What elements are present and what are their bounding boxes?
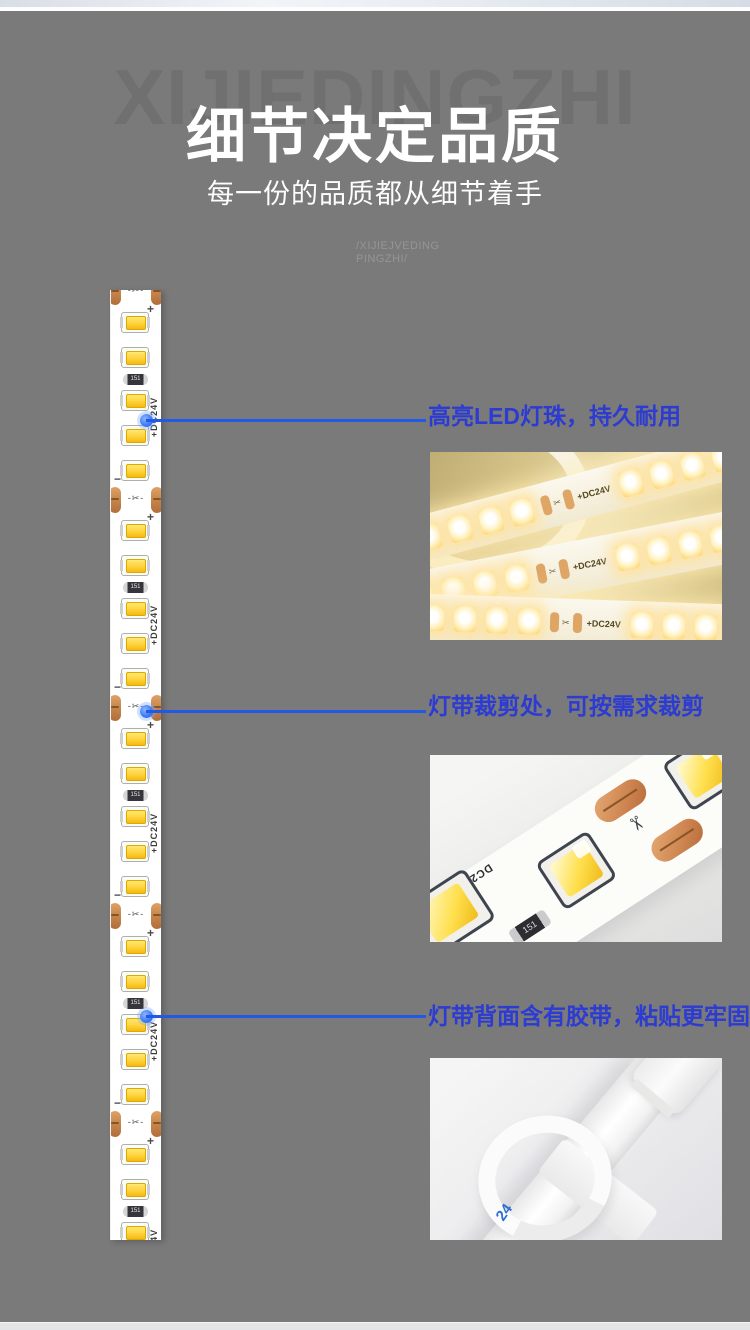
- product-detail-section: XIJIEDINGZHI 细节决定品质 每一份的品质都从细节着手 /XIJIEJ…: [0, 0, 750, 1330]
- led-die: [126, 767, 146, 781]
- led-chip: [121, 425, 149, 446]
- led-die: [126, 880, 146, 894]
- led-die: [126, 524, 146, 538]
- led-chip: [121, 598, 149, 619]
- led-die: [126, 351, 146, 365]
- led-chip: [121, 633, 149, 654]
- led-die: [126, 810, 146, 824]
- led-chip: [121, 347, 149, 368]
- glowing-led: [709, 452, 722, 473]
- led-die: [126, 429, 146, 443]
- glowing-led: [617, 467, 645, 498]
- glowing-led: [477, 505, 505, 536]
- photo-lit-strips: ✂+DC24V✂+DC24V✂+DC24V: [430, 452, 722, 640]
- led-chip: [121, 312, 149, 333]
- led-die: [126, 1148, 146, 1162]
- scissors-icon: -✂-: [111, 1117, 161, 1128]
- glowing-led: [662, 613, 685, 640]
- glowing-led: [677, 530, 704, 560]
- glowing-led: [430, 605, 445, 632]
- led-chip: [121, 520, 149, 541]
- resistor-151: 151: [123, 998, 148, 1009]
- led-chip: [121, 555, 149, 576]
- led-die: [126, 845, 146, 859]
- resistor-151: 151: [123, 582, 148, 593]
- section-subtitle: 每一份的品质都从细节着手: [0, 172, 750, 211]
- slogan-line-1: /XIJIEJVEDING: [356, 240, 440, 253]
- section-title: 细节决定品质: [0, 88, 750, 175]
- led-chip: [121, 1179, 149, 1200]
- led-chip: [121, 1084, 149, 1105]
- glowing-led: [694, 614, 717, 640]
- led-die: [126, 1183, 146, 1197]
- led-chip: [121, 763, 149, 784]
- led-chip: [121, 1049, 149, 1070]
- dc24v-label: +DC24V: [149, 1222, 159, 1240]
- minus-mark: −: [114, 888, 121, 902]
- slogan-text: /XIJIEJVEDING PINGZHI/: [356, 240, 440, 266]
- dc24v-label: +DC24V: [572, 556, 608, 572]
- scissors-icon: ✂: [548, 565, 558, 577]
- scissors-icon: ✂: [562, 617, 570, 628]
- resistor-151: 151: [508, 909, 552, 942]
- callout-line-1: [146, 419, 426, 422]
- glowing-led: [486, 607, 509, 634]
- resistor-151: 151: [123, 790, 148, 801]
- glowing-led: [630, 612, 653, 639]
- scissors-icon: -✂-: [111, 909, 161, 920]
- scissors-icon: ✂: [622, 811, 650, 837]
- strip-segment: -✂-−+151+DC24V: [111, 916, 161, 1124]
- glowing-led: [679, 452, 707, 482]
- led-chip: [121, 668, 149, 689]
- glowing-led: [518, 608, 541, 635]
- copper-pad: [550, 612, 560, 632]
- led-strip: -✂-−+151+DC24V-✂-−+151+DC24V-✂-−+151+DC2…: [110, 290, 161, 1240]
- cut-point: ✂+DC24V: [550, 612, 621, 634]
- led-die: [126, 1053, 146, 1067]
- glowing-led: [446, 513, 474, 544]
- callout-line-3: [146, 1015, 426, 1018]
- led-chip: [121, 876, 149, 897]
- led-die: [126, 602, 146, 616]
- glowing-led: [614, 542, 641, 572]
- copper-pad: [646, 814, 708, 867]
- led-die: [126, 732, 146, 746]
- dc24v-label: +DC24V: [149, 598, 159, 652]
- led-die: [126, 940, 146, 954]
- scissors-icon: ✂: [552, 496, 562, 509]
- slogan-line-2: PINGZHI/: [356, 253, 440, 266]
- led-chip: [121, 460, 149, 481]
- callout-line-2: [146, 710, 426, 713]
- dc24v-label: +DC24V: [586, 618, 621, 629]
- led-die: [126, 1226, 146, 1240]
- minus-mark: −: [114, 472, 121, 486]
- minus-mark: −: [114, 1096, 121, 1110]
- led-die: [126, 464, 146, 478]
- copper-pad: [572, 613, 582, 633]
- bottom-edge-bar: [0, 1322, 750, 1330]
- top-edge-highlight: [0, 7, 750, 11]
- led-die: [126, 316, 146, 330]
- led-chip: [535, 830, 617, 911]
- dc24v-label: +DC24V: [576, 483, 612, 502]
- callout-title-1: 高亮LED灯珠，持久耐用: [428, 397, 681, 431]
- copper-pad: [557, 559, 570, 580]
- strip-segment: -✂-−+151+DC24V: [111, 1124, 161, 1240]
- photo-adhesive-back: 24: [430, 1058, 722, 1240]
- callout-title-2: 灯带裁剪处，可按需求裁剪: [428, 687, 704, 721]
- led-die: [126, 975, 146, 989]
- strip-segment: -✂-−+151+DC24V: [111, 500, 161, 708]
- led-chip: [121, 728, 149, 749]
- glowing-led: [508, 497, 536, 528]
- copper-pad: [561, 489, 575, 511]
- resistor-151: 151: [123, 374, 148, 385]
- led-die: [126, 559, 146, 573]
- led-die: [126, 394, 146, 408]
- cut-point: ✂+DC24V: [539, 479, 613, 517]
- glowing-led: [648, 459, 676, 490]
- led-chip: [121, 936, 149, 957]
- led-die: [126, 672, 146, 686]
- led-die: [126, 1088, 146, 1102]
- callout-title-3: 灯带背面含有胶带，粘贴更牢固: [428, 997, 750, 1031]
- strip-segment: -✂-−+151+DC24V: [111, 708, 161, 916]
- dc24v-label: +DC24V: [149, 806, 159, 860]
- top-edge-bar: [0, 0, 750, 7]
- led-chip: [662, 755, 722, 812]
- lit-strip-bar: ✂+DC24V: [430, 593, 722, 640]
- scissors-icon: -✂-: [111, 493, 161, 504]
- photo-cut-point: DC24V+ 151 ✂: [430, 755, 722, 942]
- led-chip: [121, 1222, 149, 1240]
- resistor-151: 151: [123, 1206, 148, 1217]
- glowing-led: [454, 606, 477, 633]
- strip-segment: -✂-−+151+DC24V: [111, 292, 161, 500]
- scissors-icon: -✂-: [111, 290, 161, 296]
- glowing-led: [503, 564, 530, 594]
- dc24v-label: +DC24V: [149, 1014, 159, 1068]
- cut-point: ✂+DC24V: [535, 551, 608, 584]
- led-chip: [121, 390, 149, 411]
- glowing-led: [708, 524, 722, 554]
- copper-pad: [535, 563, 548, 584]
- led-chip: [121, 806, 149, 827]
- glowing-led: [645, 536, 672, 566]
- led-die: [126, 637, 146, 651]
- led-chip: [121, 1144, 149, 1165]
- glowing-led: [430, 521, 443, 552]
- led-chip: [121, 841, 149, 862]
- led-chip: [121, 971, 149, 992]
- minus-mark: −: [114, 680, 121, 694]
